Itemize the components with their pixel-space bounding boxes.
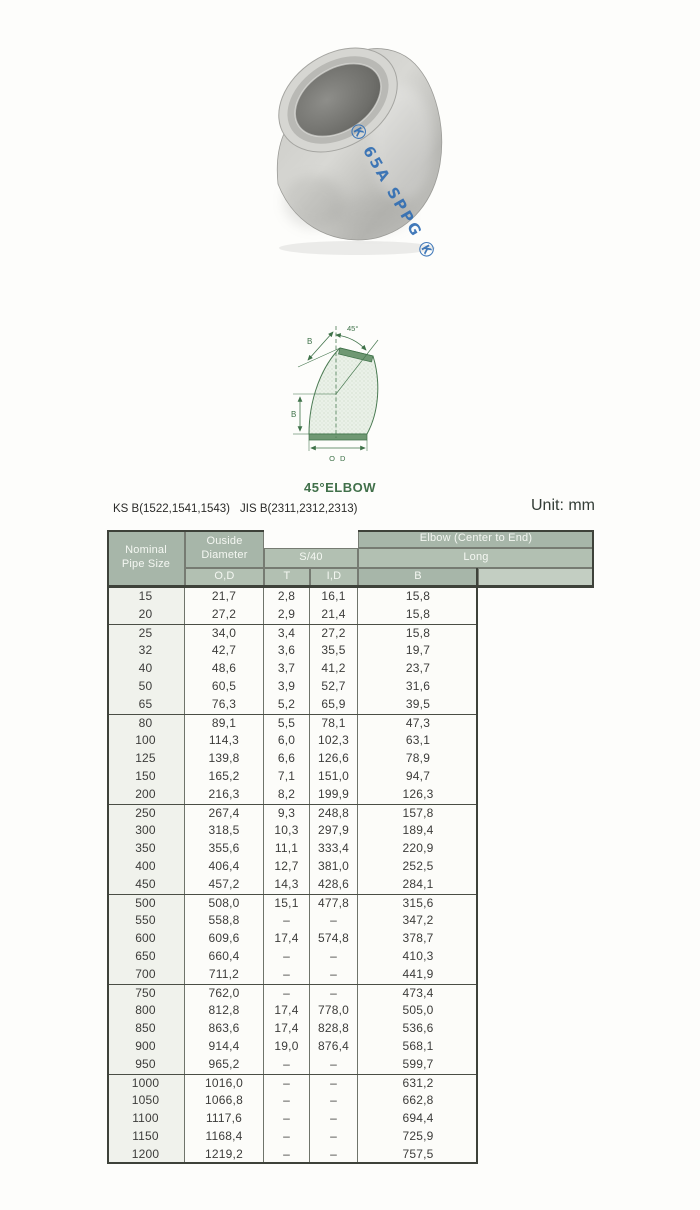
cell-value: 473,4: [358, 985, 478, 1002]
table-row: 4048,63,741,223,7: [107, 660, 478, 678]
cell-value: 1117,6: [185, 1110, 264, 1128]
cell-value: 157,8: [358, 805, 478, 822]
cell-value: 762,0: [185, 985, 264, 1002]
cell-value: 8,2: [264, 786, 310, 804]
table-row: 200216,38,2199,9126,3: [107, 786, 478, 804]
cell-value: 39,5: [358, 696, 478, 714]
cell-nominal-size: 950: [107, 1056, 185, 1074]
cell-value: 315,6: [358, 895, 478, 912]
header-b: B: [358, 568, 478, 586]
cell-value: 27,2: [310, 625, 358, 642]
cell-nominal-size: 50: [107, 678, 185, 696]
cell-nominal-size: 700: [107, 966, 185, 984]
cell-value: 41,2: [310, 660, 358, 678]
cell-nominal-size: 80: [107, 715, 185, 732]
table-row: 750762,0––473,4: [107, 984, 478, 1002]
unit-label: Unit: mm: [455, 497, 595, 515]
cell-value: 863,6: [185, 1020, 264, 1038]
cell-value: 558,8: [185, 912, 264, 930]
cell-value: –: [264, 948, 310, 966]
table-row: 2027,22,921,415,8: [107, 606, 478, 624]
cell-value: 812,8: [185, 1002, 264, 1020]
cell-value: –: [264, 1075, 310, 1092]
table-row: 650660,4––410,3: [107, 948, 478, 966]
header-id: I,D: [310, 568, 358, 586]
table-row: 550558,8––347,2: [107, 912, 478, 930]
table-border-left: [107, 530, 109, 1164]
cell-nominal-size: 450: [107, 876, 185, 894]
cell-value: 220,9: [358, 840, 478, 858]
table-row: 11001117,6––694,4: [107, 1110, 478, 1128]
cell-value: 609,6: [185, 930, 264, 948]
cell-nominal-size: 1050: [107, 1092, 185, 1110]
table-row: 600609,617,4574,8378,7: [107, 930, 478, 948]
cell-value: 2,9: [264, 606, 310, 624]
cell-value: 9,3: [264, 805, 310, 822]
cell-value: 631,2: [358, 1075, 478, 1092]
cell-value: 7,1: [264, 768, 310, 786]
table-row: 10501066,8––662,8: [107, 1092, 478, 1110]
cell-value: –: [264, 1128, 310, 1146]
cell-value: –: [264, 1092, 310, 1110]
cell-nominal-size: 800: [107, 1002, 185, 1020]
cell-value: –: [264, 985, 310, 1002]
cell-value: 27,2: [185, 606, 264, 624]
cell-value: 1168,4: [185, 1128, 264, 1146]
cell-value: 94,7: [358, 768, 478, 786]
cell-value: 15,1: [264, 895, 310, 912]
cell-value: 355,6: [185, 840, 264, 858]
standards-jis: JIS B(2311,2312,2313): [240, 503, 357, 515]
header-elbow-center-to-end: Elbow (Center to End): [358, 530, 594, 548]
cell-value: 876,4: [310, 1038, 358, 1056]
cell-value: 5,2: [264, 696, 310, 714]
cell-value: –: [264, 1056, 310, 1074]
cell-value: 3,4: [264, 625, 310, 642]
cell-value: –: [310, 1092, 358, 1110]
cell-nominal-size: 40: [107, 660, 185, 678]
table-row: 400406,412,7381,0252,5: [107, 858, 478, 876]
product-photo: Ⓚ 65A SPPG Ⓚ: [252, 24, 456, 260]
standards-ks: KS B(1522,1541,1543): [113, 503, 230, 515]
cell-value: 16,1: [310, 588, 358, 606]
cell-value: 574,8: [310, 930, 358, 948]
cell-nominal-size: 400: [107, 858, 185, 876]
cell-value: 1016,0: [185, 1075, 264, 1092]
cell-value: 151,0: [310, 768, 358, 786]
cell-value: 10,3: [264, 822, 310, 840]
header-schedule-s40: S/40: [264, 548, 358, 568]
cell-value: –: [310, 1128, 358, 1146]
table-row: 350355,611,1333,4220,9: [107, 840, 478, 858]
cell-value: 31,6: [358, 678, 478, 696]
table-row: 700711,2––441,9: [107, 966, 478, 984]
cell-value: 5,5: [264, 715, 310, 732]
table-row: 500508,015,1477,8315,6: [107, 894, 478, 912]
cell-value: 15,8: [358, 625, 478, 642]
cell-nominal-size: 20: [107, 606, 185, 624]
cell-value: 267,4: [185, 805, 264, 822]
cell-nominal-size: 300: [107, 822, 185, 840]
cell-nominal-size: 600: [107, 930, 185, 948]
header-t: T: [264, 568, 310, 586]
cell-nominal-size: 150: [107, 768, 185, 786]
cell-value: 3,7: [264, 660, 310, 678]
cell-value: 428,6: [310, 876, 358, 894]
cell-nominal-size: 15: [107, 588, 185, 606]
cell-value: 662,8: [358, 1092, 478, 1110]
cell-nominal-size: 25: [107, 625, 185, 642]
cell-value: 15,8: [358, 588, 478, 606]
header-od: O,D: [185, 568, 264, 586]
cell-value: 63,1: [358, 732, 478, 750]
cell-value: 114,3: [185, 732, 264, 750]
cell-value: –: [264, 1110, 310, 1128]
elbow-diagram: 45° B B O D: [283, 320, 433, 472]
cell-value: 139,8: [185, 750, 264, 768]
cell-value: 248,8: [310, 805, 358, 822]
cell-nominal-size: 1100: [107, 1110, 185, 1128]
table-row: 100114,36,0102,363,1: [107, 732, 478, 750]
cell-value: 252,5: [358, 858, 478, 876]
cell-value: 778,0: [310, 1002, 358, 1020]
cell-value: 34,0: [185, 625, 264, 642]
cell-value: 333,4: [310, 840, 358, 858]
table-row: 450457,214,3428,6284,1: [107, 876, 478, 894]
cell-value: 17,4: [264, 930, 310, 948]
cell-value: 1066,8: [185, 1092, 264, 1110]
cell-value: 21,4: [310, 606, 358, 624]
cell-value: –: [264, 912, 310, 930]
cell-value: 477,8: [310, 895, 358, 912]
cell-value: 48,6: [185, 660, 264, 678]
cell-value: 19,0: [264, 1038, 310, 1056]
table-border-top-right: [358, 530, 594, 532]
cell-value: 378,7: [358, 930, 478, 948]
cell-value: 347,2: [358, 912, 478, 930]
cell-value: 3,9: [264, 678, 310, 696]
cell-value: 6,6: [264, 750, 310, 768]
cell-value: 381,0: [310, 858, 358, 876]
elbow-diagram-svg: 45° B B O D: [283, 320, 433, 472]
cell-nominal-size: 65: [107, 696, 185, 714]
cell-value: 2,8: [264, 588, 310, 606]
cell-nominal-size: 350: [107, 840, 185, 858]
table-row: 850863,617,4828,8536,6: [107, 1020, 478, 1038]
cell-value: 52,7: [310, 678, 358, 696]
cell-value: 505,0: [358, 1002, 478, 1020]
cell-value: 17,4: [264, 1002, 310, 1020]
table-row: 250267,49,3248,8157,8: [107, 804, 478, 822]
cell-value: 410,3: [358, 948, 478, 966]
table-row: 150165,27,1151,094,7: [107, 768, 478, 786]
table-body: 1521,72,816,115,82027,22,921,415,82534,0…: [107, 588, 478, 1164]
table-row: 300318,510,3297,9189,4: [107, 822, 478, 840]
cell-nominal-size: 1000: [107, 1075, 185, 1092]
cell-value: –: [264, 966, 310, 984]
cell-nominal-size: 550: [107, 912, 185, 930]
cell-value: –: [310, 1075, 358, 1092]
photo-shadow: [279, 241, 435, 255]
cell-value: –: [310, 966, 358, 984]
cell-value: 199,9: [310, 786, 358, 804]
cell-value: 126,6: [310, 750, 358, 768]
spec-table: Nominal Pipe Size Ouside Diameter O,D S/…: [107, 530, 594, 1164]
cell-value: 508,0: [185, 895, 264, 912]
cell-value: 165,2: [185, 768, 264, 786]
table-row: 950965,2––599,7: [107, 1056, 478, 1074]
cell-value: –: [310, 985, 358, 1002]
cell-nominal-size: 100: [107, 732, 185, 750]
table-row: 900914,419,0876,4568,1: [107, 1038, 478, 1056]
header-long: Long: [358, 548, 594, 568]
cell-nominal-size: 1150: [107, 1128, 185, 1146]
table-row: 6576,35,265,939,5: [107, 696, 478, 714]
cell-value: 406,4: [185, 858, 264, 876]
cell-value: 828,8: [310, 1020, 358, 1038]
table-border-right-ext: [592, 530, 594, 588]
cell-value: 441,9: [358, 966, 478, 984]
cell-value: 297,9: [310, 822, 358, 840]
cell-value: 19,7: [358, 642, 478, 660]
elbow-photo-svg: Ⓚ 65A SPPG Ⓚ: [252, 24, 456, 260]
diagram-bottom-face: [309, 434, 367, 440]
cell-nominal-size: 900: [107, 1038, 185, 1056]
cell-value: 21,7: [185, 588, 264, 606]
cell-value: 694,4: [358, 1110, 478, 1128]
cell-value: 78,1: [310, 715, 358, 732]
cell-value: 126,3: [358, 786, 478, 804]
header-outside-diameter: Ouside Diameter: [185, 530, 264, 568]
cell-value: 711,2: [185, 966, 264, 984]
cell-nominal-size: 850: [107, 1020, 185, 1038]
od-label: O D: [329, 454, 347, 463]
cell-value: 11,1: [264, 840, 310, 858]
cell-value: 102,3: [310, 732, 358, 750]
cell-value: 78,9: [358, 750, 478, 768]
cell-value: 725,9: [358, 1128, 478, 1146]
cell-value: 914,4: [185, 1038, 264, 1056]
b-side-label: B: [291, 410, 296, 419]
cell-value: 12,7: [264, 858, 310, 876]
table-border-right-main: [476, 568, 478, 1164]
table-row: 125139,86,6126,678,9: [107, 750, 478, 768]
diagram-caption: 45°ELBOW: [255, 480, 425, 495]
table-row: 11501168,4––725,9: [107, 1128, 478, 1146]
table-row: 2534,03,427,215,8: [107, 624, 478, 642]
cell-value: 216,3: [185, 786, 264, 804]
table-border-bottom: [107, 1162, 478, 1164]
cell-value: –: [310, 1056, 358, 1074]
cell-value: 76,3: [185, 696, 264, 714]
b-top-label: B: [307, 337, 312, 346]
cell-nominal-size: 32: [107, 642, 185, 660]
cell-nominal-size: 650: [107, 948, 185, 966]
cell-value: 17,4: [264, 1020, 310, 1038]
cell-value: 89,1: [185, 715, 264, 732]
cell-nominal-size: 200: [107, 786, 185, 804]
table-row: 800812,817,4778,0505,0: [107, 1002, 478, 1020]
table-row: 1521,72,816,115,8: [107, 588, 478, 606]
cell-value: 536,6: [358, 1020, 478, 1038]
cell-value: 14,3: [264, 876, 310, 894]
cell-value: 318,5: [185, 822, 264, 840]
cell-nominal-size: 500: [107, 895, 185, 912]
cell-value: 15,8: [358, 606, 478, 624]
table-header-rule: [107, 585, 594, 588]
page-root: { "photo": { "stamp_text": "Ⓚ 65A SPPG Ⓚ…: [0, 0, 700, 1210]
cell-value: 35,5: [310, 642, 358, 660]
cell-value: 65,9: [310, 696, 358, 714]
angle-label: 45°: [347, 324, 358, 333]
cell-value: 660,4: [185, 948, 264, 966]
table-border-top-left: [107, 530, 264, 532]
cell-value: 599,7: [358, 1056, 478, 1074]
cell-nominal-size: 125: [107, 750, 185, 768]
cell-value: 568,1: [358, 1038, 478, 1056]
table-row: 3242,73,635,519,7: [107, 642, 478, 660]
cell-value: 6,0: [264, 732, 310, 750]
cell-value: 47,3: [358, 715, 478, 732]
cell-value: 284,1: [358, 876, 478, 894]
table-row: 10001016,0––631,2: [107, 1074, 478, 1092]
cell-nominal-size: 750: [107, 985, 185, 1002]
cell-value: 42,7: [185, 642, 264, 660]
cell-value: –: [310, 912, 358, 930]
table-row: 5060,53,952,731,6: [107, 678, 478, 696]
cell-value: –: [310, 948, 358, 966]
table-row: 8089,15,578,147,3: [107, 714, 478, 732]
cell-nominal-size: 250: [107, 805, 185, 822]
cell-value: 3,6: [264, 642, 310, 660]
cell-value: 23,7: [358, 660, 478, 678]
cell-value: 457,2: [185, 876, 264, 894]
cell-value: 189,4: [358, 822, 478, 840]
header-nominal-pipe-size: Nominal Pipe Size: [107, 530, 185, 586]
header-empty-cell: [478, 568, 594, 586]
cell-value: 965,2: [185, 1056, 264, 1074]
cell-value: –: [310, 1110, 358, 1128]
cell-value: 60,5: [185, 678, 264, 696]
